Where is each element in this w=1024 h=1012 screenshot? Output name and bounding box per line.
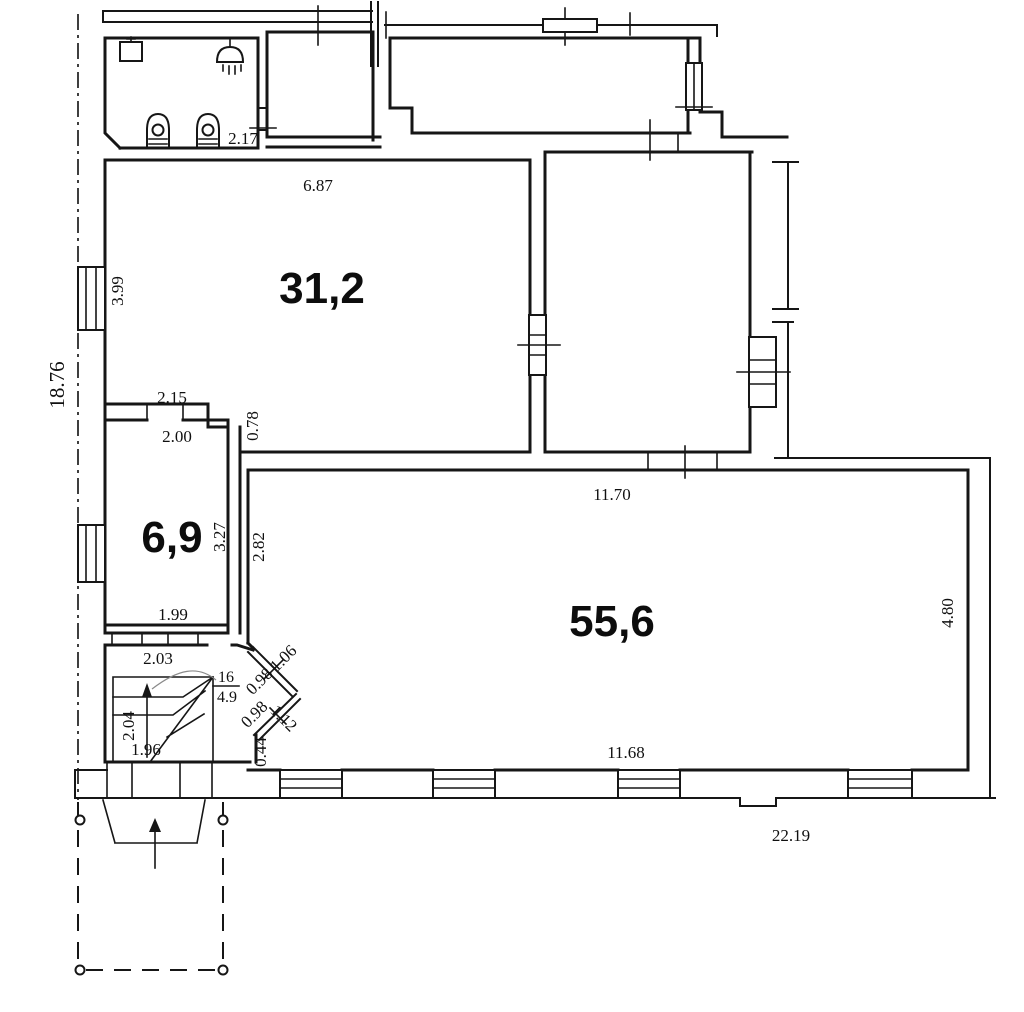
dim-stair-width: 1.96 <box>131 740 161 759</box>
dim-lobby-width: 2.15 <box>157 388 187 407</box>
window-left-2 <box>78 525 105 582</box>
washbasin-icon <box>217 38 243 74</box>
dim-bay-window2-outer: 1.12 <box>267 701 301 735</box>
floor-plan: 31,2 6,9 55,6 16 4.9 18.76 22.19 2.17 6.… <box>0 0 1024 1012</box>
toilet-icon <box>197 114 219 148</box>
stair-area: 4.9 <box>217 689 237 706</box>
dim-room55-left-height: 2.82 <box>249 532 268 562</box>
stair-arrow-head <box>142 683 152 697</box>
stair-number-label: 16 4.9 <box>213 669 239 706</box>
window-mid-right-wall <box>737 337 790 407</box>
dim-room6-top-width: 2.00 <box>162 427 192 446</box>
window-bottom-4 <box>848 770 912 798</box>
dim-overall-left: 18.76 <box>45 361 69 408</box>
exterior-walls-top <box>103 2 717 66</box>
dim-bay-window2-inner: 0.98 <box>237 697 271 731</box>
boiler-icon <box>120 37 142 61</box>
dim-bath-width: 2.17 <box>228 129 258 148</box>
dim-room6-bottom-width: 1.99 <box>158 605 188 624</box>
toilet-icon <box>147 114 169 148</box>
dim-bay-window1-inner: 0.98 <box>242 664 276 698</box>
porch-post <box>219 816 228 825</box>
room6-area-label: 6,9 <box>141 513 202 562</box>
window-left-1 <box>78 267 105 330</box>
top-small-room-walls <box>267 32 380 147</box>
window-bottom-3 <box>618 770 680 798</box>
entrance-arrow-head <box>149 818 161 832</box>
middle-room-walls <box>530 152 752 452</box>
window-bottom-1 <box>280 770 342 798</box>
dim-room55-bottom-width: 11.68 <box>607 743 645 762</box>
dim-bay-wall: 0.44 <box>251 737 270 767</box>
window-mid-left-wall <box>518 315 560 375</box>
porch-post <box>76 816 85 825</box>
window-bottom-2 <box>433 770 495 798</box>
porch-post <box>219 966 228 975</box>
dim-overall-bottom: 22.19 <box>772 826 810 845</box>
dim-stair-depth: 2.04 <box>119 711 138 741</box>
dim-wall-step: 0.78 <box>243 411 262 441</box>
window-corridor-top <box>543 19 597 32</box>
porch-post <box>76 966 85 975</box>
window-corridor-right <box>676 63 712 110</box>
dim-room55-right-height: 4.80 <box>938 598 957 628</box>
dim-room31-height: 3.99 <box>108 276 127 306</box>
dim-bay-window1-outer: 1.06 <box>266 641 300 675</box>
room-area-labels: 31,2 6,9 55,6 <box>141 264 654 646</box>
dim-stair-hall-width: 2.03 <box>143 649 173 668</box>
dim-room6-height: 3.27 <box>210 522 229 552</box>
room55-area-label: 55,6 <box>569 597 655 646</box>
stair-number: 16 <box>218 669 234 686</box>
dim-room31-width: 6.87 <box>303 176 333 195</box>
dim-room55-top-width: 11.70 <box>593 485 631 504</box>
bathroom-fixtures <box>120 37 243 148</box>
dimension-labels: 18.76 22.19 2.17 6.87 3.99 2.15 2.00 0.7… <box>45 129 957 845</box>
room31-area-label: 31,2 <box>279 264 365 313</box>
corridor-walls <box>390 38 787 160</box>
floor-plan-drawing: 31,2 6,9 55,6 16 4.9 18.76 22.19 2.17 6.… <box>0 0 1024 1012</box>
porch <box>76 800 228 975</box>
